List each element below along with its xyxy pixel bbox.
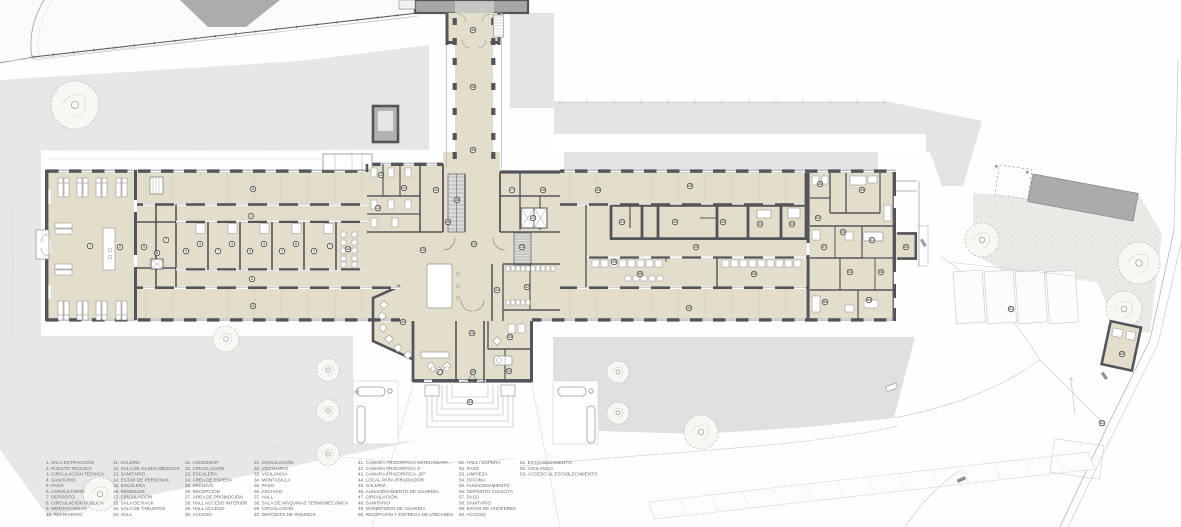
svg-text:11: 11 bbox=[251, 304, 255, 308]
svg-text:3. CIRCULACIÓN TÉCNICA: 3. CIRCULACIÓN TÉCNICA bbox=[46, 471, 105, 477]
svg-text:11: 11 bbox=[251, 187, 255, 191]
svg-text:59: 59 bbox=[823, 300, 827, 304]
svg-text:45: 45 bbox=[688, 184, 692, 188]
svg-text:23. ESCALERA: 23. ESCALERA bbox=[185, 472, 218, 477]
svg-text:6: 6 bbox=[295, 242, 297, 246]
svg-text:20. HALL: 20. HALL bbox=[113, 512, 133, 517]
svg-text:15. ESCALERA: 15. ESCALERA bbox=[113, 483, 146, 488]
svg-text:21: 21 bbox=[531, 216, 535, 220]
svg-text:16. RESIDUOS: 16. RESIDUOS bbox=[113, 489, 145, 494]
svg-text:27. ÁREA DE PROMOCIÓN: 27. ÁREA DE PROMOCIÓN bbox=[185, 494, 243, 500]
svg-text:9. MONTACARGAS: 9. MONTACARGAS bbox=[46, 506, 87, 511]
svg-text:63: 63 bbox=[1120, 352, 1124, 356]
svg-text:56: 56 bbox=[879, 270, 883, 274]
svg-text:55. ALMACENAMIENTO: 55. ALMACENAMIENTO bbox=[459, 483, 510, 488]
svg-text:43. CÁMARA FRIGORÍFICA -30º: 43. CÁMARA FRIGORÍFICA -30º bbox=[358, 471, 426, 477]
svg-text:53: 53 bbox=[848, 270, 852, 274]
svg-text:21. ASCENSOR: 21. ASCENSOR bbox=[185, 460, 219, 465]
svg-text:39. CIRCULACIÓN: 39. CIRCULACIÓN bbox=[254, 505, 293, 511]
svg-text:53. LIMPIEZA: 53. LIMPIEZA bbox=[459, 472, 489, 477]
svg-text:10. REFRIGERIO: 10. REFRIGERIO bbox=[46, 512, 83, 517]
svg-text:52. PASO: 52. PASO bbox=[459, 466, 480, 471]
svg-text:16: 16 bbox=[455, 198, 459, 202]
svg-text:44: 44 bbox=[758, 222, 762, 226]
svg-text:51. HALL / ESPERA: 51. HALL / ESPERA bbox=[459, 460, 501, 465]
svg-text:4. SANITARIO: 4. SANITARIO bbox=[46, 477, 76, 482]
svg-text:40: 40 bbox=[612, 260, 616, 264]
svg-text:50: 50 bbox=[841, 230, 845, 234]
svg-text:31. CIRCULACIÓN: 31. CIRCULACIÓN bbox=[254, 459, 293, 465]
svg-text:34. MONTASILLA: 34. MONTASILLA bbox=[254, 477, 291, 482]
svg-text:3: 3 bbox=[250, 214, 252, 218]
svg-text:22: 22 bbox=[472, 242, 476, 246]
svg-text:57. PASO: 57. PASO bbox=[459, 495, 480, 500]
svg-text:47: 47 bbox=[822, 245, 826, 249]
svg-text:18: 18 bbox=[541, 188, 545, 192]
svg-text:7: 7 bbox=[165, 238, 167, 242]
svg-text:4: 4 bbox=[231, 242, 233, 246]
svg-text:5. PASO: 5. PASO bbox=[46, 483, 64, 488]
svg-text:6: 6 bbox=[249, 249, 251, 253]
svg-text:28. HALL ACCESO INTERIOR: 28. HALL ACCESO INTERIOR bbox=[185, 500, 248, 505]
svg-text:25: 25 bbox=[421, 248, 425, 252]
svg-text:4: 4 bbox=[263, 242, 265, 246]
svg-text:41: 41 bbox=[620, 220, 624, 224]
svg-text:18. SALA DE RACK: 18. SALA DE RACK bbox=[113, 500, 155, 505]
svg-text:46: 46 bbox=[818, 182, 822, 186]
svg-text:61: 61 bbox=[1009, 307, 1013, 311]
svg-text:34: 34 bbox=[507, 369, 511, 373]
svg-text:38: 38 bbox=[471, 28, 475, 32]
svg-text:4: 4 bbox=[313, 249, 315, 253]
svg-text:40. DEPÓSITO DE INSUMOS: 40. DEPÓSITO DE INSUMOS bbox=[254, 511, 316, 517]
svg-text:47. CIRCULACIÓN: 47. CIRCULACIÓN bbox=[358, 494, 397, 500]
svg-text:33: 33 bbox=[508, 335, 512, 339]
svg-text:52: 52 bbox=[816, 216, 820, 220]
svg-text:42. CÁMARA FRIGORÍFICA 4º: 42. CÁMARA FRIGORÍFICA 4º bbox=[358, 465, 422, 471]
svg-text:56. DEPÓSITO COLECTA: 56. DEPÓSITO COLECTA bbox=[459, 488, 514, 494]
svg-text:42: 42 bbox=[673, 220, 677, 224]
svg-text:30. ACCESO: 30. ACCESO bbox=[185, 512, 212, 517]
svg-text:10: 10 bbox=[346, 247, 350, 251]
svg-text:62: 62 bbox=[1100, 421, 1104, 425]
svg-text:45. GALERÍA: 45. GALERÍA bbox=[358, 482, 387, 488]
svg-text:62. VIGILANCIA: 62. VIGILANCIA bbox=[520, 466, 554, 471]
svg-text:4: 4 bbox=[199, 242, 201, 246]
svg-text:13. SANITARIO: 13. SANITARIO bbox=[113, 472, 146, 477]
svg-text:13: 13 bbox=[376, 206, 380, 210]
svg-text:54: 54 bbox=[867, 298, 871, 302]
svg-text:60: 60 bbox=[904, 245, 908, 249]
svg-text:8. CIRCULACIÓN PÚBLICA: 8. CIRCULACIÓN PÚBLICA bbox=[46, 499, 105, 505]
svg-text:25. ARCHIVO: 25. ARCHIVO bbox=[185, 483, 214, 488]
svg-text:32: 32 bbox=[525, 285, 529, 289]
svg-text:48. SANITARIO: 48. SANITARIO bbox=[358, 500, 391, 505]
svg-text:51: 51 bbox=[870, 238, 874, 242]
svg-text:6. CONSULTORIO: 6. CONSULTORIO bbox=[46, 489, 85, 494]
svg-text:7. DEPÓSITO: 7. DEPÓSITO bbox=[46, 494, 75, 500]
svg-text:58. SANITARIO: 58. SANITARIO bbox=[459, 500, 492, 505]
svg-text:4: 4 bbox=[281, 249, 283, 253]
svg-text:45: 45 bbox=[687, 306, 691, 310]
svg-text:30: 30 bbox=[468, 400, 472, 404]
svg-text:45: 45 bbox=[596, 188, 600, 192]
svg-text:27: 27 bbox=[438, 370, 442, 374]
svg-text:61. ESTACIONAMIENTO: 61. ESTACIONAMIENTO bbox=[520, 460, 572, 465]
svg-text:23: 23 bbox=[520, 245, 524, 249]
svg-text:2: 2 bbox=[119, 245, 121, 249]
svg-text:26. RECEPCIÓN: 26. RECEPCIÓN bbox=[185, 488, 220, 494]
svg-text:37. HALL: 37. HALL bbox=[254, 495, 274, 500]
svg-text:11. GALERÍA: 11. GALERÍA bbox=[113, 459, 141, 465]
svg-text:12: 12 bbox=[379, 173, 383, 177]
svg-text:46. ALMACENAMIENTO DE GUARDIA: 46. ALMACENAMIENTO DE GUARDIA bbox=[358, 489, 439, 494]
svg-text:24: 24 bbox=[401, 320, 405, 324]
svg-text:44. LOCAL PARA IRRADIADOR: 44. LOCAL PARA IRRADIADOR bbox=[358, 477, 425, 482]
svg-text:6: 6 bbox=[185, 249, 187, 253]
svg-text:2. PUESTO TÉCNICO: 2. PUESTO TÉCNICO bbox=[46, 465, 92, 471]
svg-text:63. ACCESO AL ESTABLECIMIENTO: 63. ACCESO AL ESTABLECIMIENTO bbox=[520, 472, 598, 477]
svg-text:1. SALA EXTRACCIÓN: 1. SALA EXTRACCIÓN bbox=[46, 459, 94, 465]
svg-text:5: 5 bbox=[143, 245, 145, 249]
svg-text:49: 49 bbox=[860, 188, 864, 192]
svg-text:35. PASO: 35. PASO bbox=[254, 483, 275, 488]
svg-text:55: 55 bbox=[638, 272, 642, 276]
svg-text:60. ACCESO: 60. ACCESO bbox=[459, 512, 486, 517]
svg-text:15: 15 bbox=[434, 188, 438, 192]
svg-text:17: 17 bbox=[510, 188, 514, 192]
svg-text:38. SALA DE MÁQUINAS TERMOMECÁ: 38. SALA DE MÁQUINAS TERMOMECÁNICA bbox=[254, 499, 350, 505]
svg-text:9: 9 bbox=[156, 251, 158, 255]
svg-text:31: 31 bbox=[495, 288, 499, 292]
svg-text:14: 14 bbox=[402, 186, 406, 190]
svg-text:32. VESTUARIO: 32. VESTUARIO bbox=[254, 466, 289, 471]
svg-text:7: 7 bbox=[329, 244, 331, 248]
svg-text:43: 43 bbox=[721, 220, 725, 224]
svg-text:41. CÁMARA FRIGORÍFICA ANTECÁM: 41. CÁMARA FRIGORÍFICA ANTECÁMARA bbox=[358, 459, 450, 465]
svg-text:44: 44 bbox=[790, 222, 794, 226]
svg-text:29: 29 bbox=[471, 370, 475, 374]
svg-text:45: 45 bbox=[694, 245, 698, 249]
svg-text:38: 38 bbox=[471, 85, 475, 89]
svg-text:55: 55 bbox=[752, 272, 756, 276]
svg-text:49. DORMITORIO DE GUARDIA: 49. DORMITORIO DE GUARDIA bbox=[358, 506, 426, 511]
svg-text:22. CIRCULACIÓN: 22. CIRCULACIÓN bbox=[185, 465, 224, 471]
svg-text:17. CIRCULACIÓN: 17. CIRCULACIÓN bbox=[113, 494, 152, 500]
svg-text:14. ESTAR DE PERSONAL: 14. ESTAR DE PERSONAL bbox=[113, 477, 170, 482]
svg-text:26: 26 bbox=[470, 331, 474, 335]
svg-text:19. SALA DE TABLEROS: 19. SALA DE TABLEROS bbox=[113, 506, 165, 511]
svg-text:24. ÁREA DE ESPERA: 24. ÁREA DE ESPERA bbox=[185, 476, 233, 482]
svg-text:35: 35 bbox=[446, 220, 450, 224]
svg-text:1: 1 bbox=[89, 244, 91, 248]
svg-text:59. ESTAR DE CHOFERES: 59. ESTAR DE CHOFERES bbox=[459, 506, 516, 511]
svg-text:50. RECEPCIÓN Y ENTREGA DE UNI: 50. RECEPCIÓN Y ENTREGA DE UNIDADES bbox=[358, 511, 453, 517]
svg-text:7: 7 bbox=[217, 249, 219, 253]
svg-text:8: 8 bbox=[251, 277, 253, 281]
svg-text:39: 39 bbox=[471, 148, 475, 152]
svg-text:29. HALL ACCESO: 29. HALL ACCESO bbox=[185, 506, 225, 511]
svg-text:33. VIGILANCIA: 33. VIGILANCIA bbox=[254, 472, 288, 477]
svg-text:36. ARCHIVO: 36. ARCHIVO bbox=[254, 489, 283, 494]
svg-text:12. SALA DE GASES MÉDICOS: 12. SALA DE GASES MÉDICOS bbox=[113, 465, 180, 471]
svg-text:54. OFICINA: 54. OFICINA bbox=[459, 477, 486, 482]
